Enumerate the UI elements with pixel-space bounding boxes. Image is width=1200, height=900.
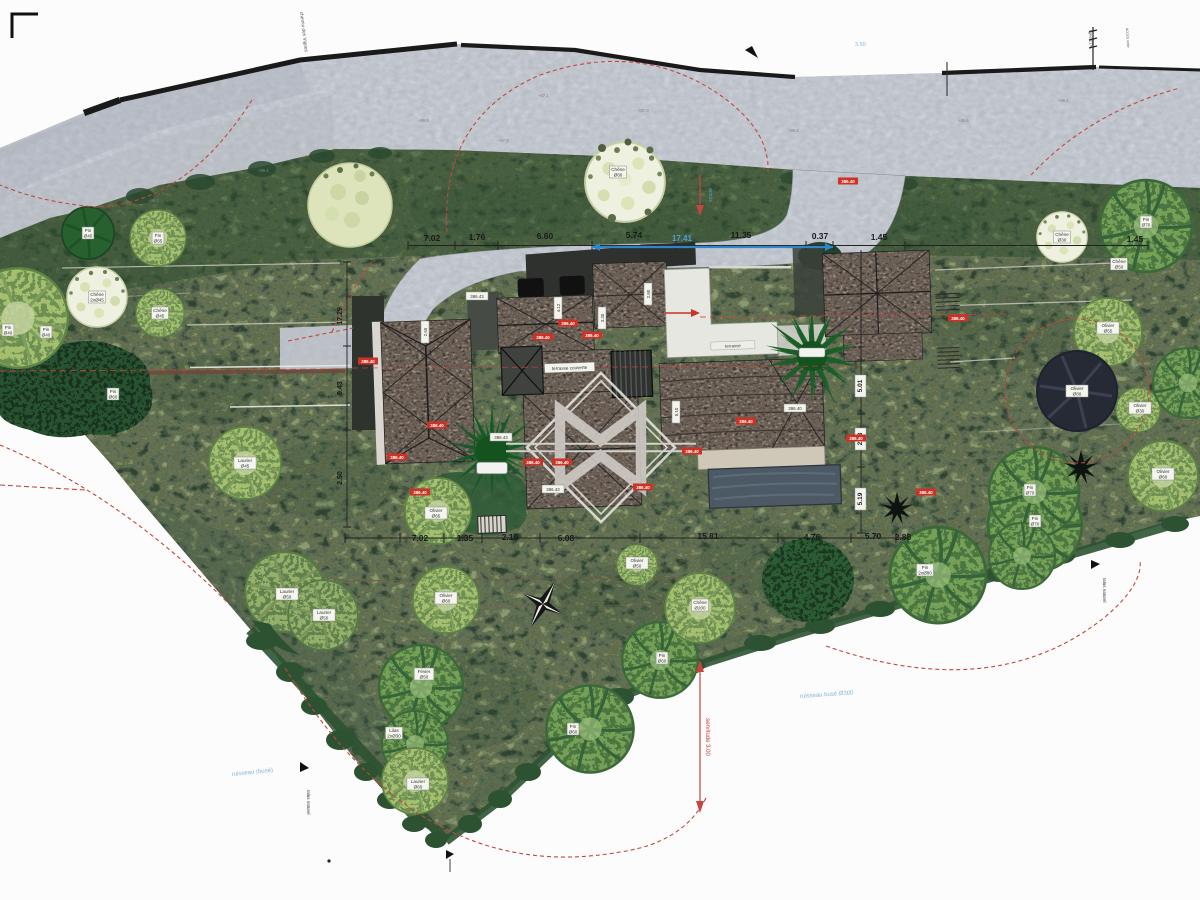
svg-text:Ø70: Ø70: [1026, 490, 1035, 495]
svg-text:5.01: 5.01: [857, 379, 864, 392]
svg-text:Olivier: Olivier: [1133, 403, 1146, 408]
svg-text:Ø40: Ø40: [4, 330, 13, 335]
svg-text:7.02: 7.02: [424, 233, 441, 243]
svg-text:Pin: Pin: [1027, 485, 1034, 490]
svg-text:Pin: Pin: [85, 228, 92, 233]
svg-text:Laurier: Laurier: [411, 779, 426, 784]
svg-text:Ø65: Ø65: [432, 513, 441, 518]
svg-text:Olivier: Olivier: [1156, 469, 1169, 474]
svg-text:Olivier: Olivier: [630, 558, 643, 563]
svg-text:Ø60: Ø60: [569, 729, 578, 734]
svg-text:1.35: 1.35: [457, 533, 474, 543]
svg-text:Olivier: Olivier: [439, 593, 452, 598]
svg-text:Chêne: Chêne: [153, 308, 167, 313]
svg-text:Chêne: Chêne: [1112, 259, 1126, 264]
svg-text:Lilas: Lilas: [389, 728, 399, 733]
svg-text:5.19: 5.19: [857, 492, 864, 505]
svg-text:+86.8: +86.8: [788, 128, 799, 133]
svg-text:Pin: Pin: [5, 325, 12, 330]
svg-text:386.43: 386.43: [470, 294, 484, 299]
svg-text:Ø65: Ø65: [154, 238, 163, 243]
svg-text:2xØ80: 2xØ80: [918, 570, 932, 575]
svg-text:2xØ30: 2xØ30: [387, 733, 401, 738]
svg-text:+86.4: +86.4: [258, 168, 269, 173]
svg-text:Pin: Pin: [659, 653, 666, 658]
svg-text:Ø40: Ø40: [42, 332, 51, 337]
svg-text:Ø55: Ø55: [1104, 328, 1113, 333]
svg-text:+87.0: +87.0: [498, 138, 509, 143]
svg-text:386.40: 386.40: [585, 333, 599, 338]
svg-text:Ø70: Ø70: [1142, 222, 1151, 227]
svg-text:talus naturel: talus naturel: [306, 790, 311, 815]
svg-text:Ø50: Ø50: [283, 594, 292, 599]
svg-text:Pin: Pin: [43, 327, 50, 332]
svg-text:6.60: 6.60: [537, 231, 554, 241]
svg-text:Pin: Pin: [922, 565, 929, 570]
svg-text:Olivier: Olivier: [1101, 323, 1114, 328]
svg-text:ligne EDF: ligne EDF: [1088, 30, 1094, 49]
svg-text:Ø30: Ø30: [1058, 237, 1067, 242]
svg-text:386.40: 386.40: [390, 455, 404, 460]
svg-text:Févier: Févier: [418, 669, 431, 674]
svg-text:talus naturel: talus naturel: [1102, 578, 1107, 603]
svg-text:386.43: 386.43: [494, 435, 508, 440]
svg-text:+86.2: +86.2: [148, 198, 159, 203]
svg-text:Pin: Pin: [570, 724, 577, 729]
svg-text:2.50: 2.50: [337, 471, 344, 485]
svg-text:accès: accès: [707, 188, 713, 203]
svg-text:+86.4: +86.4: [1058, 98, 1069, 103]
svg-text:Ø50: Ø50: [420, 674, 429, 679]
svg-text:Pin: Pin: [1032, 516, 1039, 521]
svg-text:Ø30: Ø30: [1136, 408, 1145, 413]
svg-text:Chêne: Chêne: [693, 600, 707, 605]
svg-text:386.40: 386.40: [536, 335, 550, 340]
svg-text:Ø70: Ø70: [1031, 521, 1040, 526]
svg-text:7.02: 7.02: [412, 533, 429, 543]
svg-text:Chêne: Chêne: [611, 167, 625, 172]
svg-text:terrasse: terrasse: [725, 343, 742, 349]
svg-text:+86.9: +86.9: [418, 118, 429, 123]
svg-text:4.76: 4.76: [804, 532, 821, 542]
svg-text:5.70: 5.70: [865, 531, 882, 541]
svg-text:Ø60: Ø60: [414, 784, 423, 789]
svg-text:1.45: 1.45: [871, 232, 888, 242]
svg-text:Ø60: Ø60: [1159, 474, 1168, 479]
svg-text:386.40: 386.40: [685, 449, 699, 454]
svg-text:+87.0: +87.0: [638, 108, 649, 113]
svg-text:1.76: 1.76: [469, 232, 486, 242]
svg-text:Ø60: Ø60: [658, 658, 667, 663]
svg-text:Ø40: Ø40: [84, 233, 93, 238]
svg-text:17.41: 17.41: [672, 234, 693, 243]
svg-text:386.40: 386.40: [788, 406, 802, 411]
svg-text:Laurier: Laurier: [238, 458, 253, 463]
svg-text:Ø45: Ø45: [156, 313, 165, 318]
svg-text:Laurier: Laurier: [317, 610, 332, 615]
svg-text:386.40: 386.40: [739, 419, 753, 424]
svg-text:4.12: 4.12: [556, 303, 561, 312]
svg-text:2xØ45: 2xØ45: [90, 297, 104, 302]
svg-text:386.40: 386.40: [361, 359, 375, 364]
svg-text:Olivier: Olivier: [429, 508, 442, 513]
svg-text:2.80: 2.80: [646, 289, 651, 298]
svg-text:Ø60: Ø60: [442, 598, 451, 603]
svg-text:2.65: 2.65: [423, 327, 428, 336]
svg-text:386.40: 386.40: [841, 179, 855, 184]
svg-text:Ø45: Ø45: [241, 463, 250, 468]
svg-text:Laurier: Laurier: [280, 589, 295, 594]
svg-text:Ø50: Ø50: [320, 615, 329, 620]
svg-text:9.43: 9.43: [337, 381, 344, 395]
svg-text:0.37: 0.37: [812, 231, 829, 241]
svg-text:386.40: 386.40: [919, 490, 933, 495]
svg-text:386.40: 386.40: [849, 436, 863, 441]
svg-text:+86.6: +86.6: [958, 118, 969, 123]
svg-text:386.40: 386.40: [526, 460, 540, 465]
svg-text:Pin: Pin: [110, 389, 117, 394]
svg-text:Chêne: Chêne: [1055, 232, 1069, 237]
svg-text:386.40: 386.40: [555, 460, 569, 465]
svg-text:Olivier: Olivier: [1070, 386, 1083, 391]
svg-text:15.81: 15.81: [697, 531, 719, 541]
svg-text:1.45: 1.45: [1127, 234, 1144, 244]
svg-text:Ø50: Ø50: [633, 563, 642, 568]
svg-text:5.74: 5.74: [626, 230, 643, 240]
svg-text:Ø80: Ø80: [1073, 391, 1082, 396]
svg-text:Chêne: Chêne: [90, 292, 104, 297]
svg-text:Pin: Pin: [1143, 217, 1150, 222]
svg-text:Ø60: Ø60: [614, 172, 623, 177]
svg-text:386.43: 386.43: [546, 487, 560, 492]
svg-text:386.40: 386.40: [636, 485, 650, 490]
svg-text:Ø60: Ø60: [109, 394, 118, 399]
svg-text:Ø50: Ø50: [1115, 264, 1124, 269]
svg-text:11.35: 11.35: [731, 230, 752, 240]
svg-text:accès voie: accès voie: [1125, 28, 1131, 49]
svg-text:386.40: 386.40: [413, 490, 427, 495]
svg-text:6.08: 6.08: [558, 533, 575, 543]
svg-text:3.50: 3.50: [855, 42, 866, 48]
svg-text:17.29: 17.29: [337, 307, 344, 325]
svg-text:2.88: 2.88: [895, 532, 912, 542]
svg-text:386.40: 386.40: [561, 321, 575, 326]
svg-text:386.40: 386.40: [951, 316, 965, 321]
svg-text:Ø200: Ø200: [694, 605, 706, 610]
svg-text:5.10: 5.10: [674, 407, 679, 416]
svg-text:servitude 3.00: servitude 3.00: [704, 718, 710, 756]
svg-text:386.40: 386.40: [430, 423, 444, 428]
svg-text:Pin: Pin: [155, 233, 162, 238]
svg-text:3.30: 3.30: [600, 313, 605, 322]
svg-text:+87.1: +87.1: [538, 93, 549, 98]
svg-text:2.19: 2.19: [502, 532, 519, 542]
